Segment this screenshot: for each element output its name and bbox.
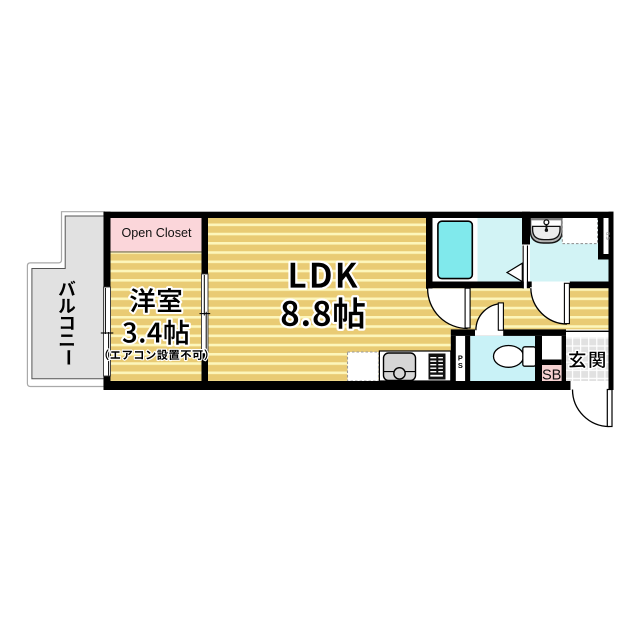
svg-text:S: S: [458, 361, 463, 370]
svg-text:0.9: 0.9: [604, 232, 610, 240]
svg-text:Open Closet: Open Closet: [121, 226, 192, 240]
svg-text:SB: SB: [542, 367, 561, 383]
